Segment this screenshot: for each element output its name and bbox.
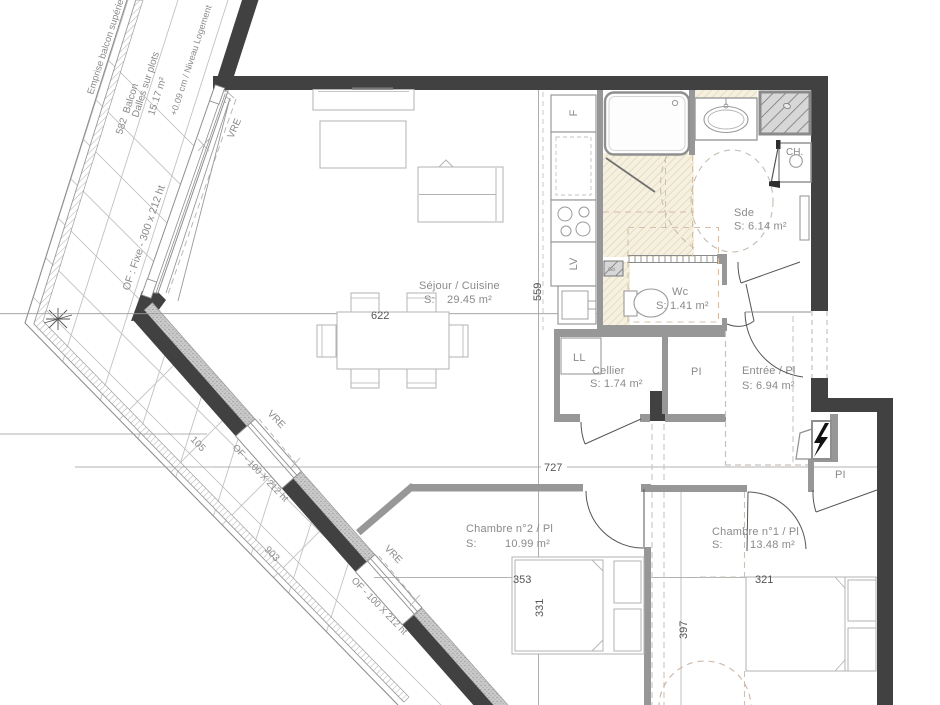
svg-text:Entrée / Pl: Entrée / Pl (742, 365, 796, 377)
svg-text:PI: PI (691, 366, 702, 378)
svg-text:10.99 m²: 10.99 m² (505, 538, 550, 550)
svg-text:353: 353 (513, 574, 531, 586)
svg-text:S:: S: (424, 294, 435, 306)
svg-text:Sde: Sde (734, 207, 754, 219)
svg-text:29.45 m²: 29.45 m² (447, 294, 492, 306)
svg-text:622: 622 (371, 310, 389, 322)
svg-text:397: 397 (678, 621, 690, 639)
svg-text:S: 6.94 m²: S: 6.94 m² (742, 380, 795, 392)
svg-text:S:: S: (466, 538, 477, 550)
svg-text:LL: LL (573, 352, 586, 364)
svg-text:13.48 m²: 13.48 m² (750, 539, 795, 551)
svg-text:S: 1.41 m²: S: 1.41 m² (656, 300, 709, 312)
svg-text:331: 331 (534, 599, 546, 617)
svg-text:PI: PI (835, 469, 846, 481)
svg-text:Chambre n°2 / Pl: Chambre n°2 / Pl (466, 523, 553, 535)
svg-text:LV: LV (568, 257, 580, 270)
svg-text:Chambre n°1 / Pl: Chambre n°1 / Pl (712, 526, 799, 538)
svg-text:Wc: Wc (672, 286, 689, 298)
svg-text:S: 6.14 m²: S: 6.14 m² (734, 221, 787, 233)
svg-text:Cellier: Cellier (592, 365, 625, 377)
svg-text:321: 321 (755, 574, 773, 586)
svg-text:Séjour / Cuisine: Séjour / Cuisine (419, 280, 500, 292)
svg-text:S:: S: (712, 539, 723, 551)
svg-text:Gb: Gb (608, 267, 615, 273)
svg-text:S: 1.74 m²: S: 1.74 m² (590, 378, 643, 390)
svg-text:727: 727 (544, 462, 562, 474)
svg-text:F: F (568, 109, 580, 116)
svg-text:559: 559 (532, 283, 544, 301)
